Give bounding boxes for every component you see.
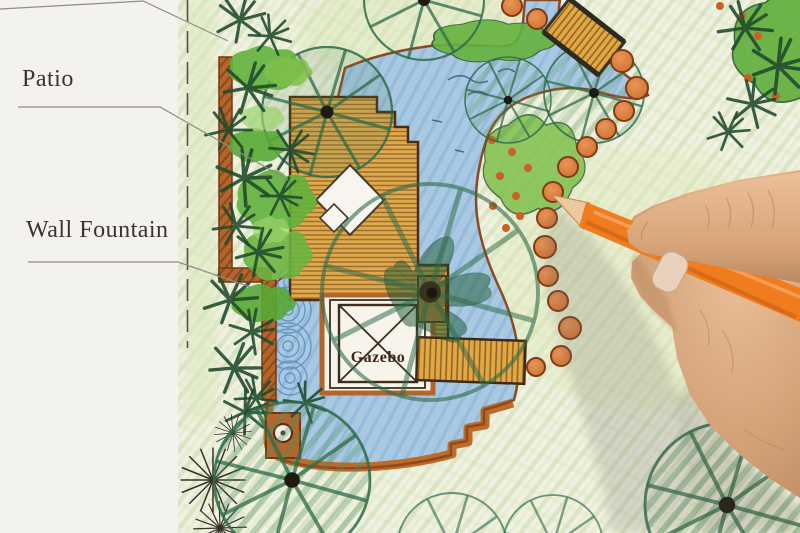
landscape-plan-photo: Gazebo xyxy=(0,0,800,533)
gazebo-label: Gazebo xyxy=(351,349,406,366)
patio-label: Patio xyxy=(22,66,74,92)
wall-fountain-label: Wall Fountain xyxy=(26,217,169,243)
